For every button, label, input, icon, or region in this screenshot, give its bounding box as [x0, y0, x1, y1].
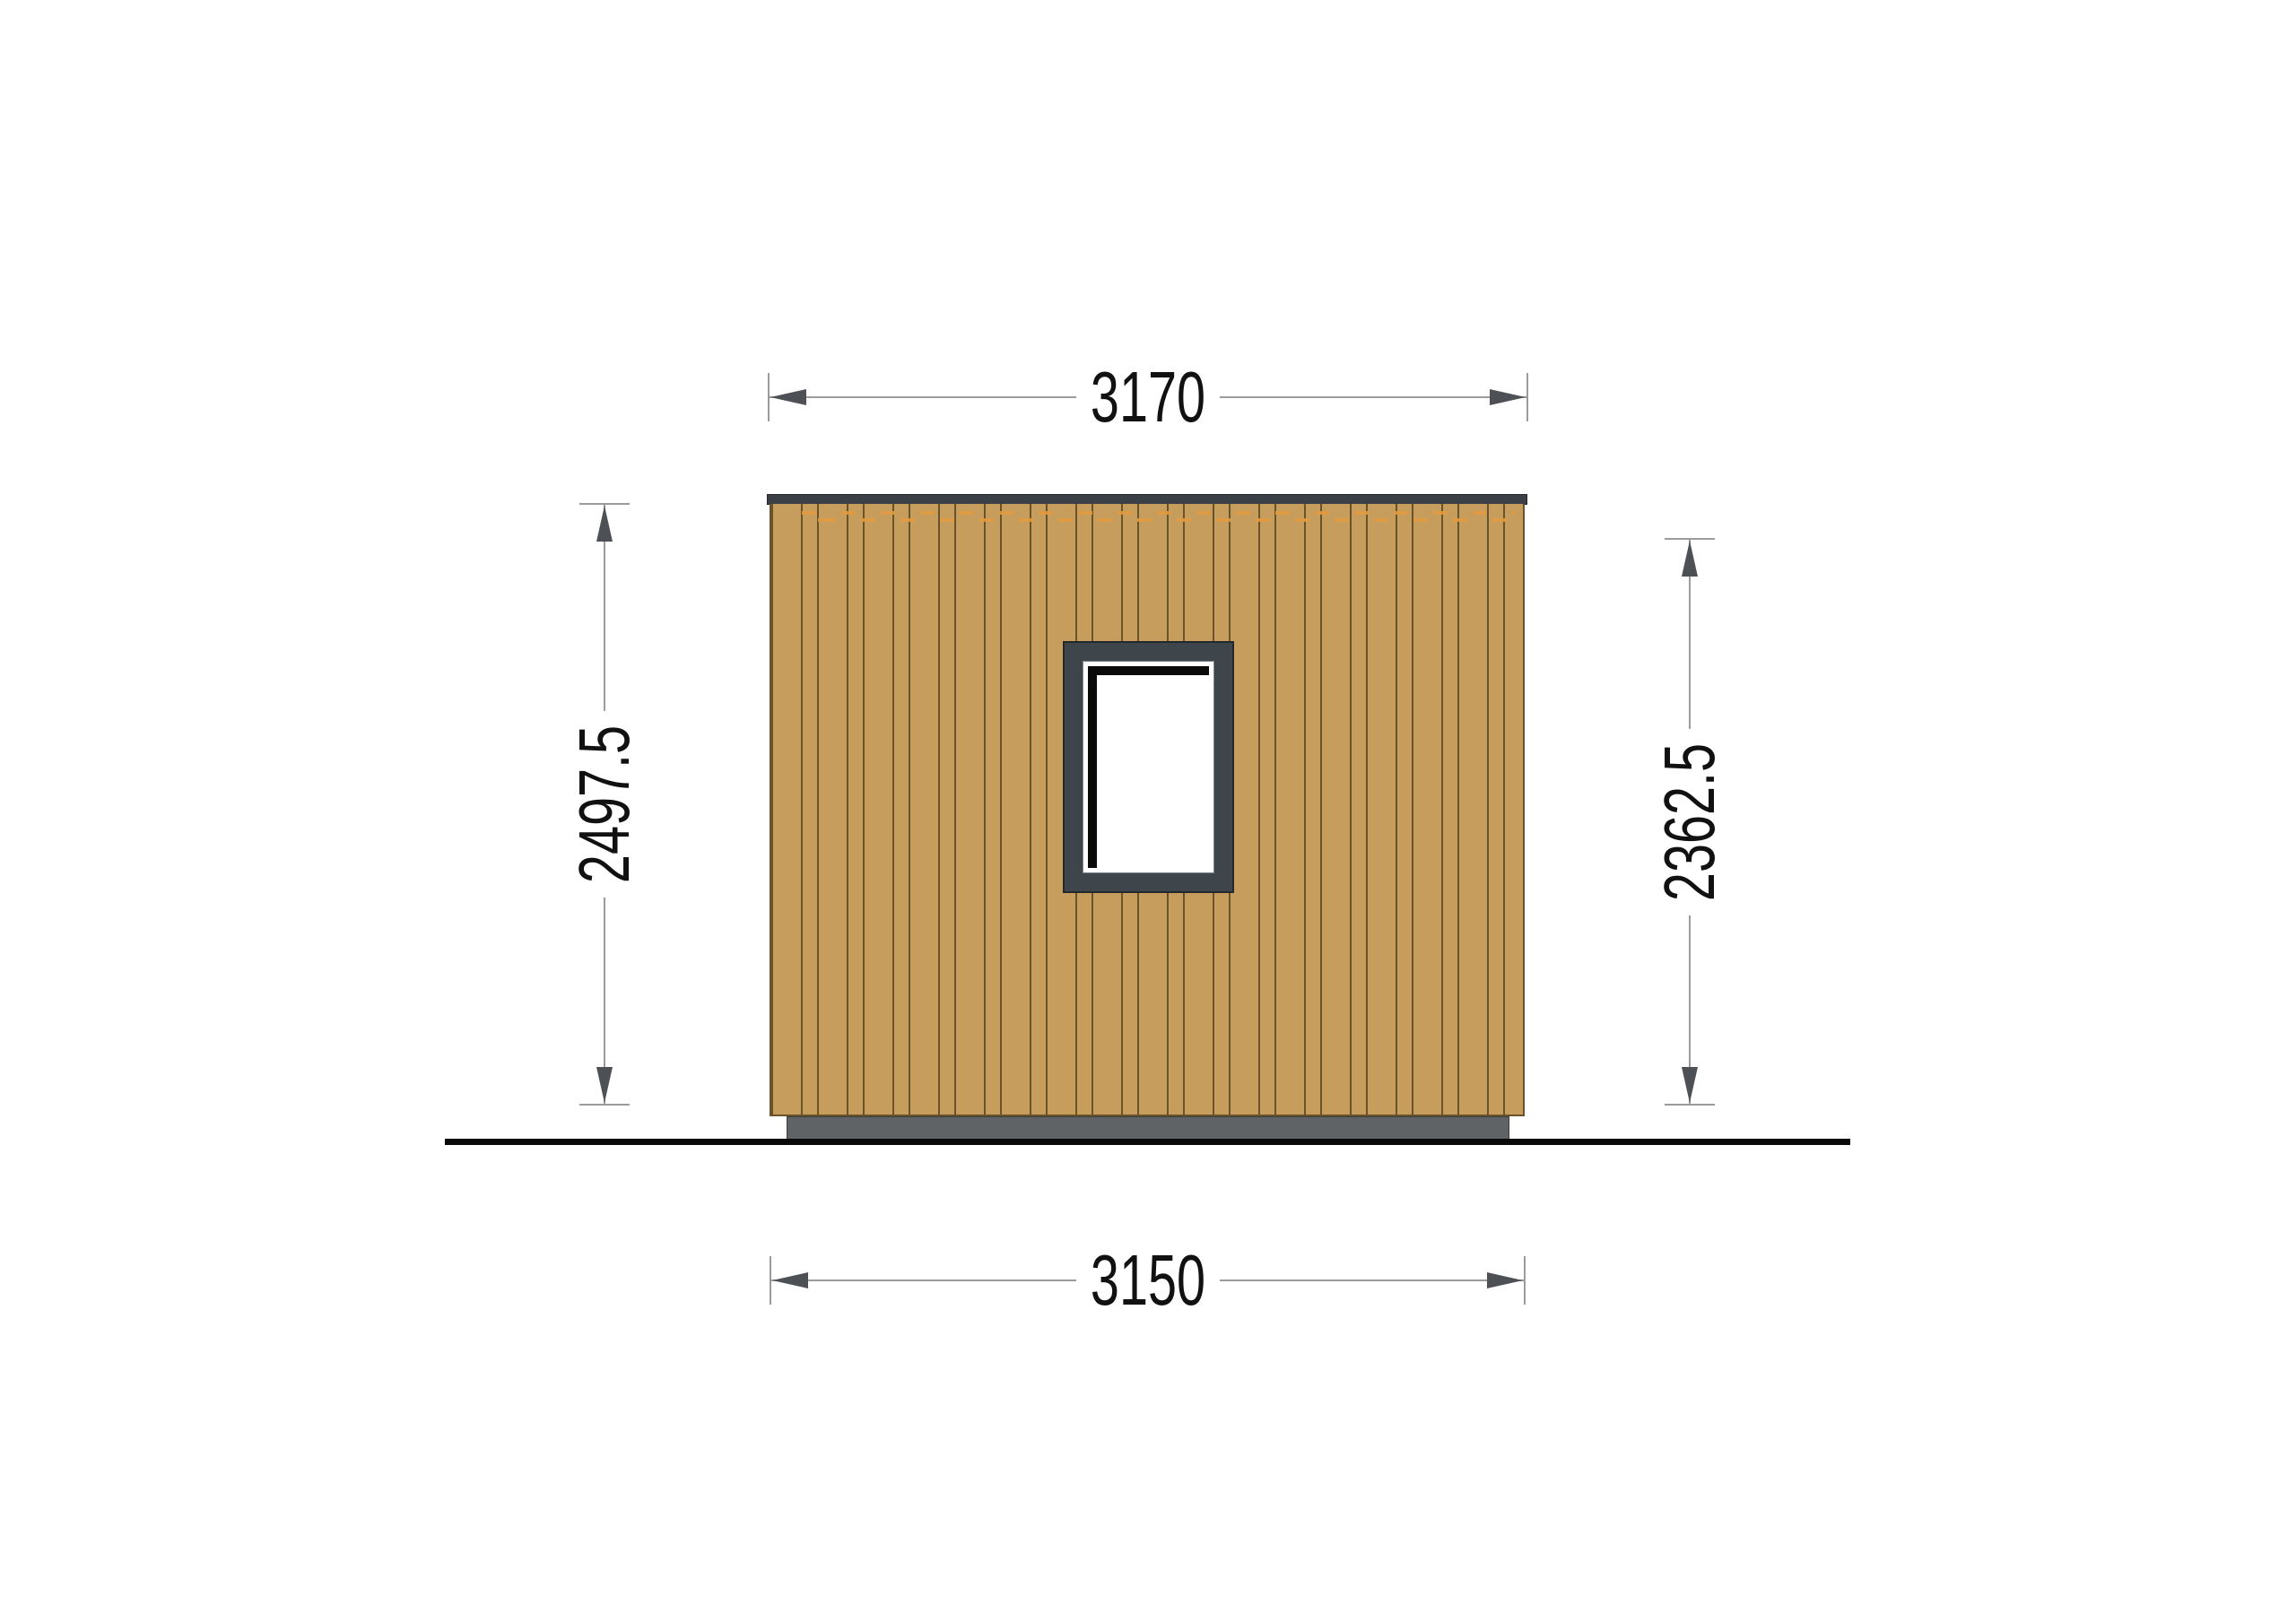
arrow-left-icon — [770, 389, 806, 405]
extension-tick-icon — [1665, 1104, 1715, 1106]
arrow-down-icon — [596, 1067, 613, 1103]
dimension-bottom-label: 3150 — [1076, 1243, 1220, 1318]
arrow-left-icon — [772, 1272, 808, 1288]
wall-cladding — [770, 504, 1525, 1116]
dimension-top-label: 3170 — [1076, 360, 1220, 435]
window-glass — [1088, 666, 1209, 868]
arrow-up-icon — [1682, 541, 1698, 577]
cladding-accent-dashes — [802, 518, 1516, 522]
dimension-right-label: 2362.5 — [1652, 729, 1727, 915]
extension-tick-icon — [579, 503, 630, 505]
foundation-plinth — [787, 1116, 1509, 1140]
cladding-accent-dashes — [802, 511, 1516, 515]
elevation-drawing: 3170 2497.5 2362.5 — [0, 0, 2296, 1622]
window — [1063, 641, 1234, 893]
extension-tick-icon — [768, 373, 770, 421]
extension-tick-icon — [1524, 1256, 1526, 1305]
extension-tick-icon — [1665, 538, 1715, 540]
extension-tick-icon — [770, 1256, 771, 1305]
arrow-right-icon — [1487, 1272, 1523, 1288]
arrow-up-icon — [596, 506, 613, 542]
arrow-right-icon — [1490, 389, 1526, 405]
window-sash — [1083, 661, 1214, 873]
dimension-left-label: 2497.5 — [567, 711, 642, 898]
extension-tick-icon — [1526, 373, 1528, 421]
extension-tick-icon — [579, 1104, 630, 1106]
arrow-down-icon — [1682, 1067, 1698, 1103]
ground-line — [445, 1139, 1850, 1145]
